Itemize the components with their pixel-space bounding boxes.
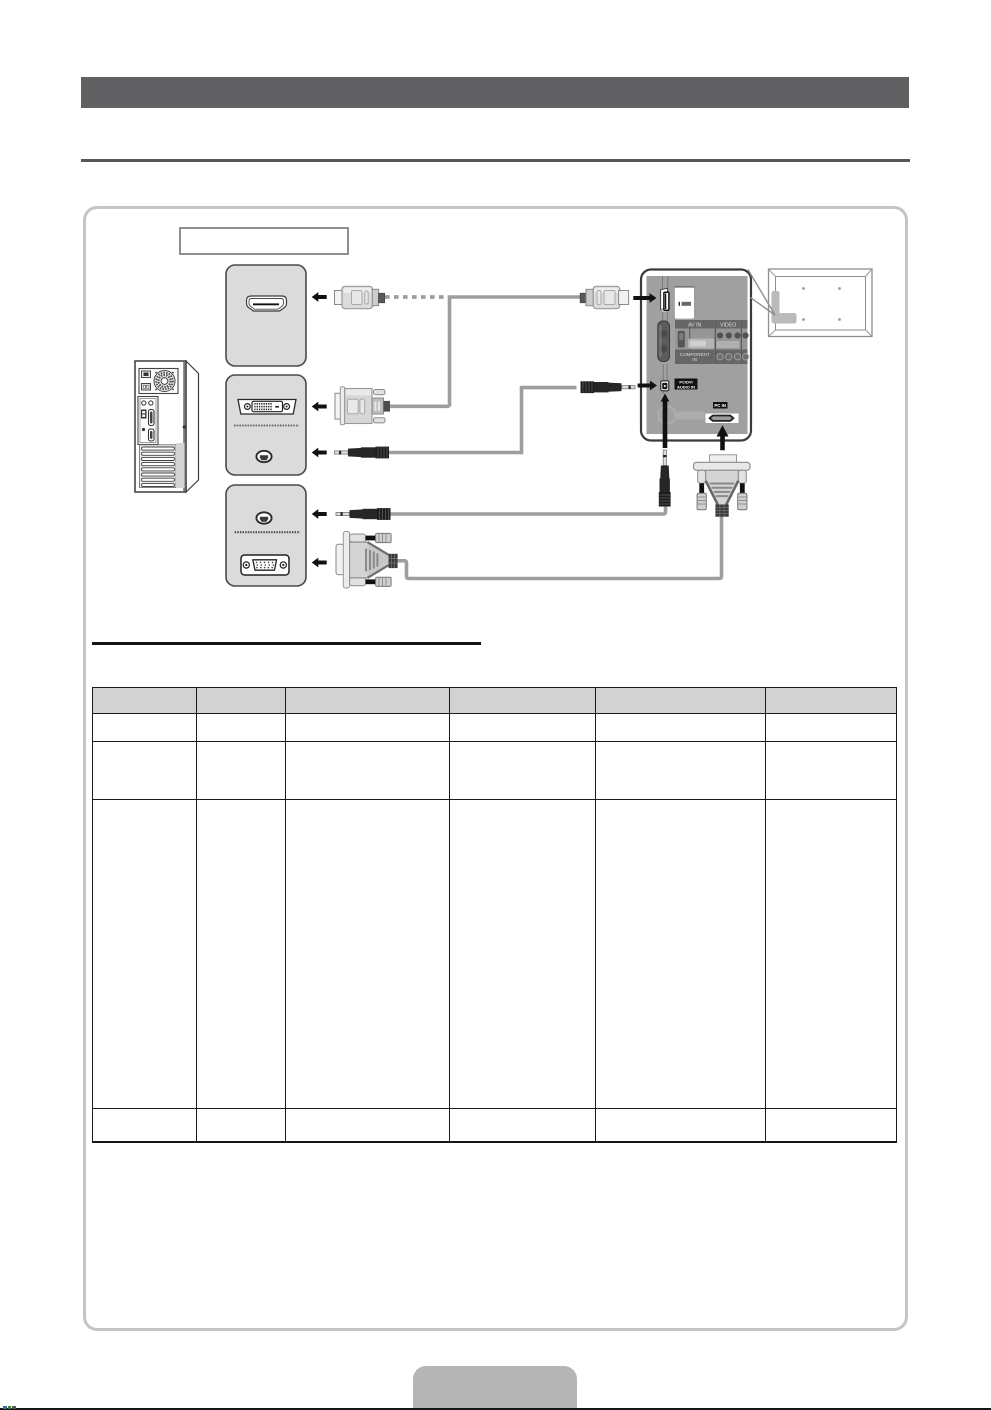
- svg-text:PC IN: PC IN: [714, 403, 726, 408]
- svg-text:VIDEO: VIDEO: [720, 323, 736, 329]
- svg-text:AUDIO IN: AUDIO IN: [677, 384, 695, 389]
- svg-text:COMPONENT: COMPONENT: [680, 352, 710, 357]
- svg-text:IN: IN: [692, 357, 697, 362]
- svg-text:AV IN: AV IN: [688, 323, 701, 329]
